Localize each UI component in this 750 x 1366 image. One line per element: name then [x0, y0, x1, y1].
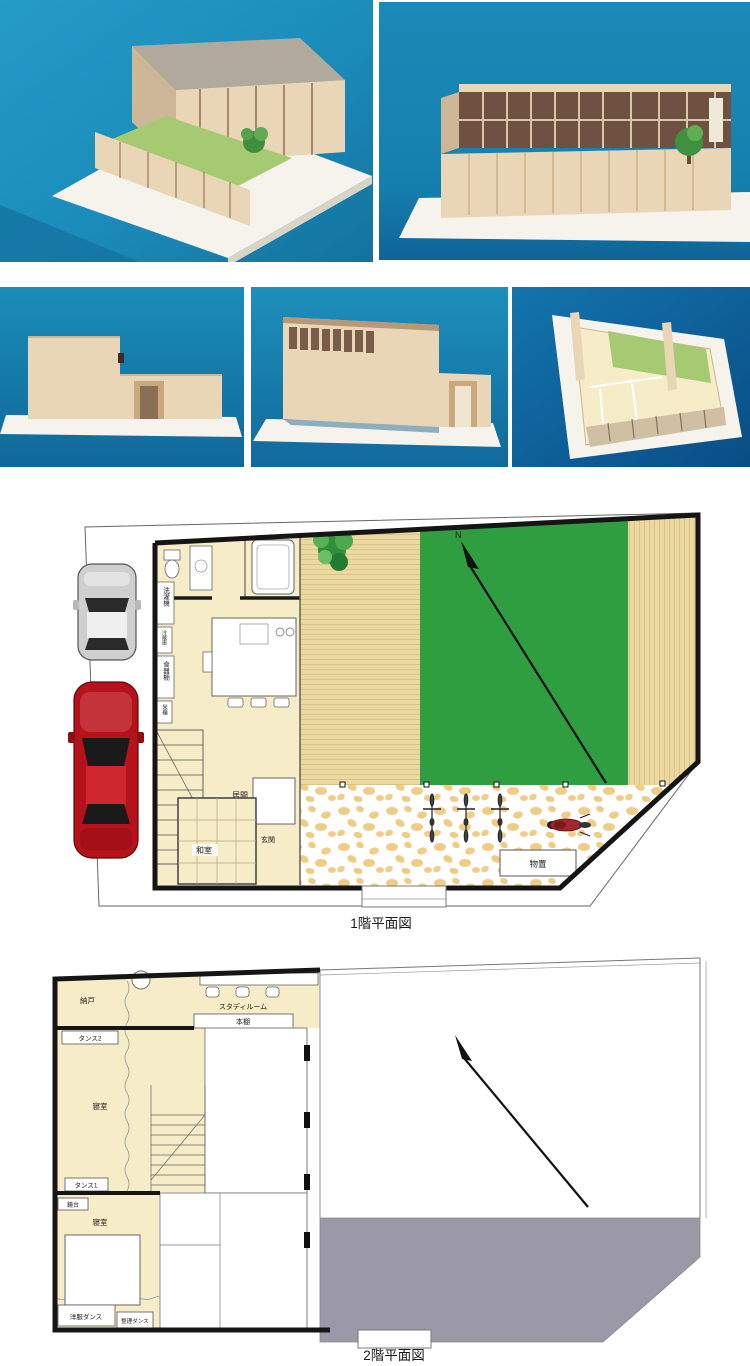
silver-car-icon: [73, 564, 141, 660]
chair-icon: [266, 987, 279, 997]
void-area: [320, 958, 706, 1218]
floor1-drawing: 洗濯機 冷蔵庫 食器棚 米櫃 居間: [0, 480, 750, 935]
stair-hall-floor: [150, 1028, 205, 1193]
model-photo-grid: [0, 0, 750, 480]
chair-icon: [236, 987, 249, 997]
vanity-icon: [190, 546, 212, 590]
floor2-plan: スタディルーム 本棚 納戸 タン: [0, 935, 750, 1366]
living-table-icon: [253, 778, 295, 824]
mirror-stand-label: 鏡台: [67, 1201, 79, 1209]
wardrobe-label: 洋服ダンス: [70, 1312, 102, 1321]
bedroom1-label: 寝室: [93, 1101, 108, 1111]
model-photo-1-scene: [0, 0, 373, 262]
dresser1-label: タンス1: [75, 1181, 98, 1190]
bookshelf-label: 本棚: [236, 1017, 250, 1026]
model-photo-5-scene: [512, 287, 750, 467]
doorway: [140, 386, 158, 419]
entrance-label: 玄関: [261, 835, 275, 844]
chest-label: 整理ダンス: [121, 1317, 148, 1325]
open-room: [205, 1028, 307, 1193]
floor1-caption: 1階平面図: [350, 916, 412, 931]
model-photo-side-elevation: [0, 287, 244, 467]
tatami-label: 和室: [196, 845, 212, 855]
study-label: スタディルーム: [219, 1002, 267, 1011]
end-wall: [441, 92, 459, 154]
model-photo-2-scene: [379, 2, 750, 260]
entry-porch: [362, 886, 446, 907]
floor2-drawing: スタディルーム 本棚 納戸 タン: [0, 935, 750, 1366]
tatami-room: 和室: [178, 798, 256, 884]
tall-volume: [28, 337, 120, 419]
model-roof-band: [459, 84, 731, 92]
porch-outline: [358, 1330, 431, 1348]
dresser2-label: タンス2: [79, 1034, 102, 1043]
fridge-label: 冷蔵庫: [161, 629, 167, 646]
bedroom2-label: 寝室: [93, 1217, 108, 1227]
model-photo-front-elevation: [379, 2, 750, 260]
chair-icon: [251, 698, 266, 707]
architecture-presentation-sheet: 洗濯機 冷蔵庫 食器棚 米櫃 居間: [0, 0, 750, 1366]
storeroom-label: 納戸: [80, 995, 95, 1005]
wood-deck-right: [628, 517, 698, 785]
kitchen-wall-labels: 洗濯機 冷蔵庫 食器棚 米櫃: [157, 582, 174, 723]
rice-bin-label: 米櫃: [161, 703, 168, 717]
kitchen-island: [203, 618, 296, 707]
red-car-icon: [68, 682, 144, 858]
north-label: N: [455, 530, 462, 540]
floor2-caption: 2階平面図: [363, 1348, 425, 1363]
toilet-icon: [165, 560, 179, 578]
chair-icon: [274, 698, 289, 707]
shed-label: 物置: [529, 859, 547, 869]
model-photo-4-scene: [251, 287, 508, 467]
floor1-plan: 洗濯機 冷蔵庫 食器棚 米櫃 居間: [0, 480, 750, 935]
bathtub-icon: [252, 540, 294, 594]
sink-icon: [240, 624, 268, 644]
model-photo-aerial-open: [512, 287, 750, 467]
bottom-middle-room: [160, 1193, 307, 1330]
model-photo-rear-perspective: [251, 287, 508, 467]
bed-icon: [65, 1235, 140, 1305]
lower-roof-area: [320, 1218, 700, 1342]
model-photo-3-scene: [0, 287, 244, 467]
model-photo-aerial-courtyard: [0, 0, 373, 262]
wall-notch: [118, 353, 124, 363]
interior-panel: [709, 98, 723, 142]
chair-icon: [206, 987, 219, 997]
wood-deck-left: [300, 531, 420, 785]
door-panel: [455, 386, 471, 427]
chair-icon: [228, 698, 243, 707]
